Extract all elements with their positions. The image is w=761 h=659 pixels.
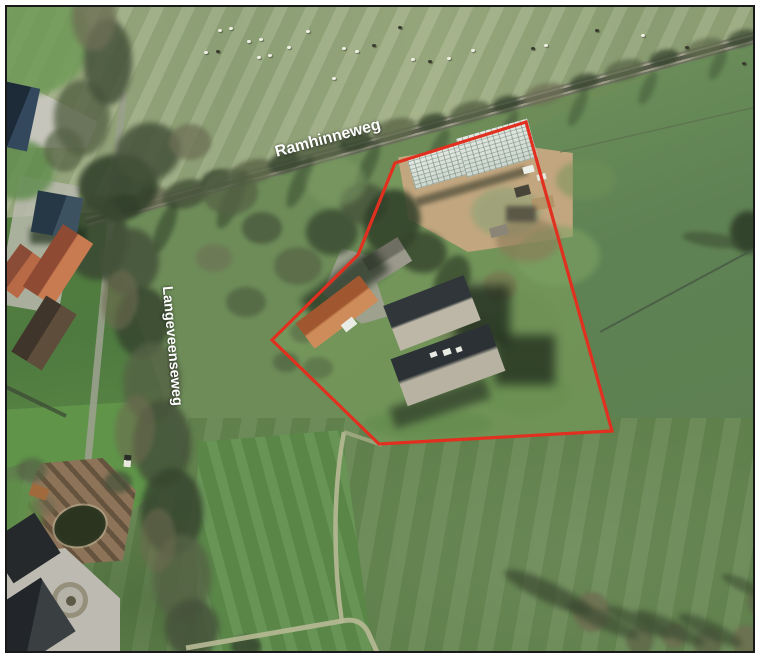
road-label-langeveenseweg: Langeveenseweg [159, 285, 185, 406]
road-label-ramhinneweg: Ramhinneweg [273, 116, 382, 161]
label-layer: RamhinnewegLangeveenseweg [0, 0, 761, 659]
aerial-photo-scene: RamhinnewegLangeveenseweg [0, 0, 761, 659]
aerial-map: RamhinnewegLangeveenseweg [0, 0, 761, 659]
